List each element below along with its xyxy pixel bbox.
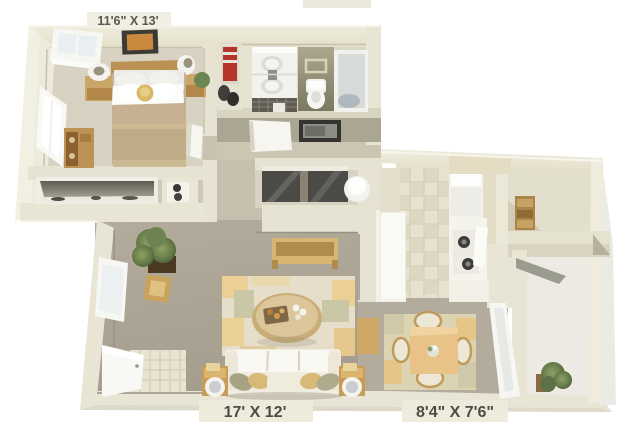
svg-text:17' X 12': 17' X 12' <box>224 404 287 421</box>
svg-text:8'4" X 7'6": 8'4" X 7'6" <box>416 404 494 421</box>
svg-text:11'6" X 13': 11'6" X 13' <box>97 14 158 28</box>
